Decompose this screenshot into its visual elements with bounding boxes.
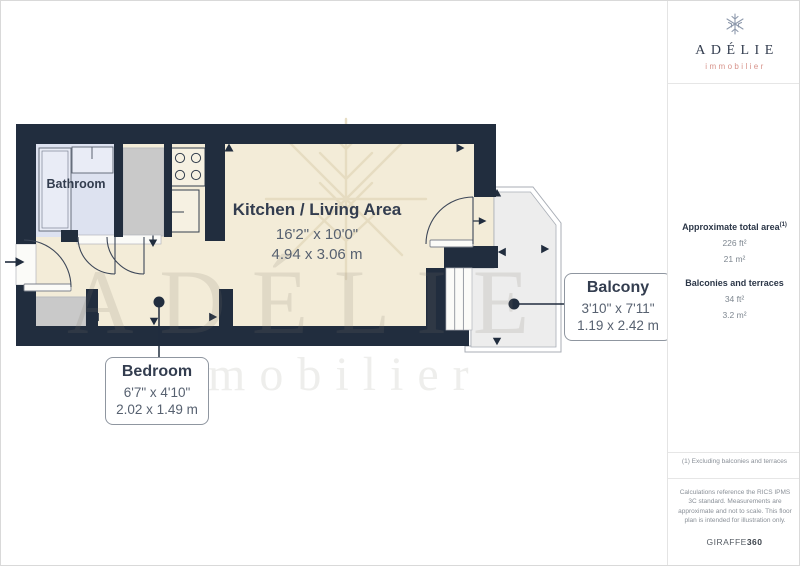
balconies-metric: 3.2 m² bbox=[668, 310, 800, 320]
balcony-dims-imperial: 3'10" x 7'11" bbox=[567, 300, 669, 317]
balconies-imperial: 34 ft² bbox=[668, 294, 800, 304]
area-footnote: (1) Excluding balconies and terraces bbox=[668, 458, 800, 465]
wardrobe bbox=[123, 148, 164, 236]
bedroom-dims-imperial: 6'7" x 4'10" bbox=[108, 384, 206, 401]
total-area-label: Approximate total area(1) bbox=[668, 222, 800, 232]
snowflake-icon bbox=[725, 13, 745, 35]
bedroom-dims-metric: 2.02 x 1.49 m bbox=[108, 401, 206, 418]
floor-plan: ADÉLIE immobilier Bathroom Kitchen / Liv… bbox=[1, 1, 667, 566]
callout-balcony: Balcony 3'10" x 7'11" 1.19 x 2.42 m bbox=[564, 273, 672, 341]
dresser bbox=[34, 297, 86, 328]
balconies-label: Balconies and terraces bbox=[668, 278, 800, 288]
bedroom-marker-dot bbox=[154, 297, 165, 308]
kitchen-living-dims-metric: 4.94 x 3.06 m bbox=[207, 245, 427, 265]
kitchen-living-dims-imperial: 16'2" x 10'0" bbox=[207, 225, 427, 245]
callout-bedroom: Bedroom 6'7" x 4'10" 2.02 x 1.49 m bbox=[105, 357, 209, 425]
floor-plan-page: ADÉLIE immobilier Bathroom Kitchen / Liv… bbox=[0, 0, 800, 566]
balcony-marker-dot bbox=[509, 299, 520, 310]
stove-icon bbox=[171, 148, 205, 186]
disclaimer-text: Calculations reference the RICS IPMS 3C … bbox=[676, 488, 794, 526]
area-summary: Approximate total area(1) 226 ft² 21 m² … bbox=[668, 222, 800, 320]
provider-suffix: 360 bbox=[747, 537, 763, 547]
brand-tagline: immobilier bbox=[668, 62, 800, 71]
balcony-dims-metric: 1.19 x 2.42 m bbox=[567, 317, 669, 334]
divider bbox=[668, 452, 800, 453]
kitchen-living-title: Kitchen / Living Area bbox=[207, 200, 427, 220]
total-area-imperial: 226 ft² bbox=[668, 238, 800, 248]
balcony-title: Balcony bbox=[567, 279, 669, 297]
provider-name: GIRAFFE bbox=[706, 537, 746, 547]
bathroom-title: Bathroom bbox=[46, 177, 105, 191]
washbasin-icon bbox=[72, 147, 113, 173]
divider bbox=[668, 83, 800, 84]
brand-logo: ADÉLIE immobilier bbox=[668, 13, 800, 71]
bedroom-title: Bedroom bbox=[108, 363, 206, 381]
kitchen-sink-icon bbox=[171, 190, 199, 232]
sidebar: ADÉLIE immobilier Approximate total area… bbox=[667, 1, 800, 566]
room-label-bathroom: Bathroom bbox=[34, 177, 118, 191]
balcony-window bbox=[446, 268, 472, 330]
footnote-ref: (1) bbox=[780, 222, 787, 228]
room-label-kitchen-living: Kitchen / Living Area 16'2" x 10'0" 4.94… bbox=[207, 200, 427, 265]
total-area-metric: 21 m² bbox=[668, 254, 800, 264]
brand-name: ADÉLIE bbox=[668, 43, 800, 59]
provider-credit: GIRAFFE360 bbox=[668, 537, 800, 547]
divider bbox=[668, 478, 800, 479]
